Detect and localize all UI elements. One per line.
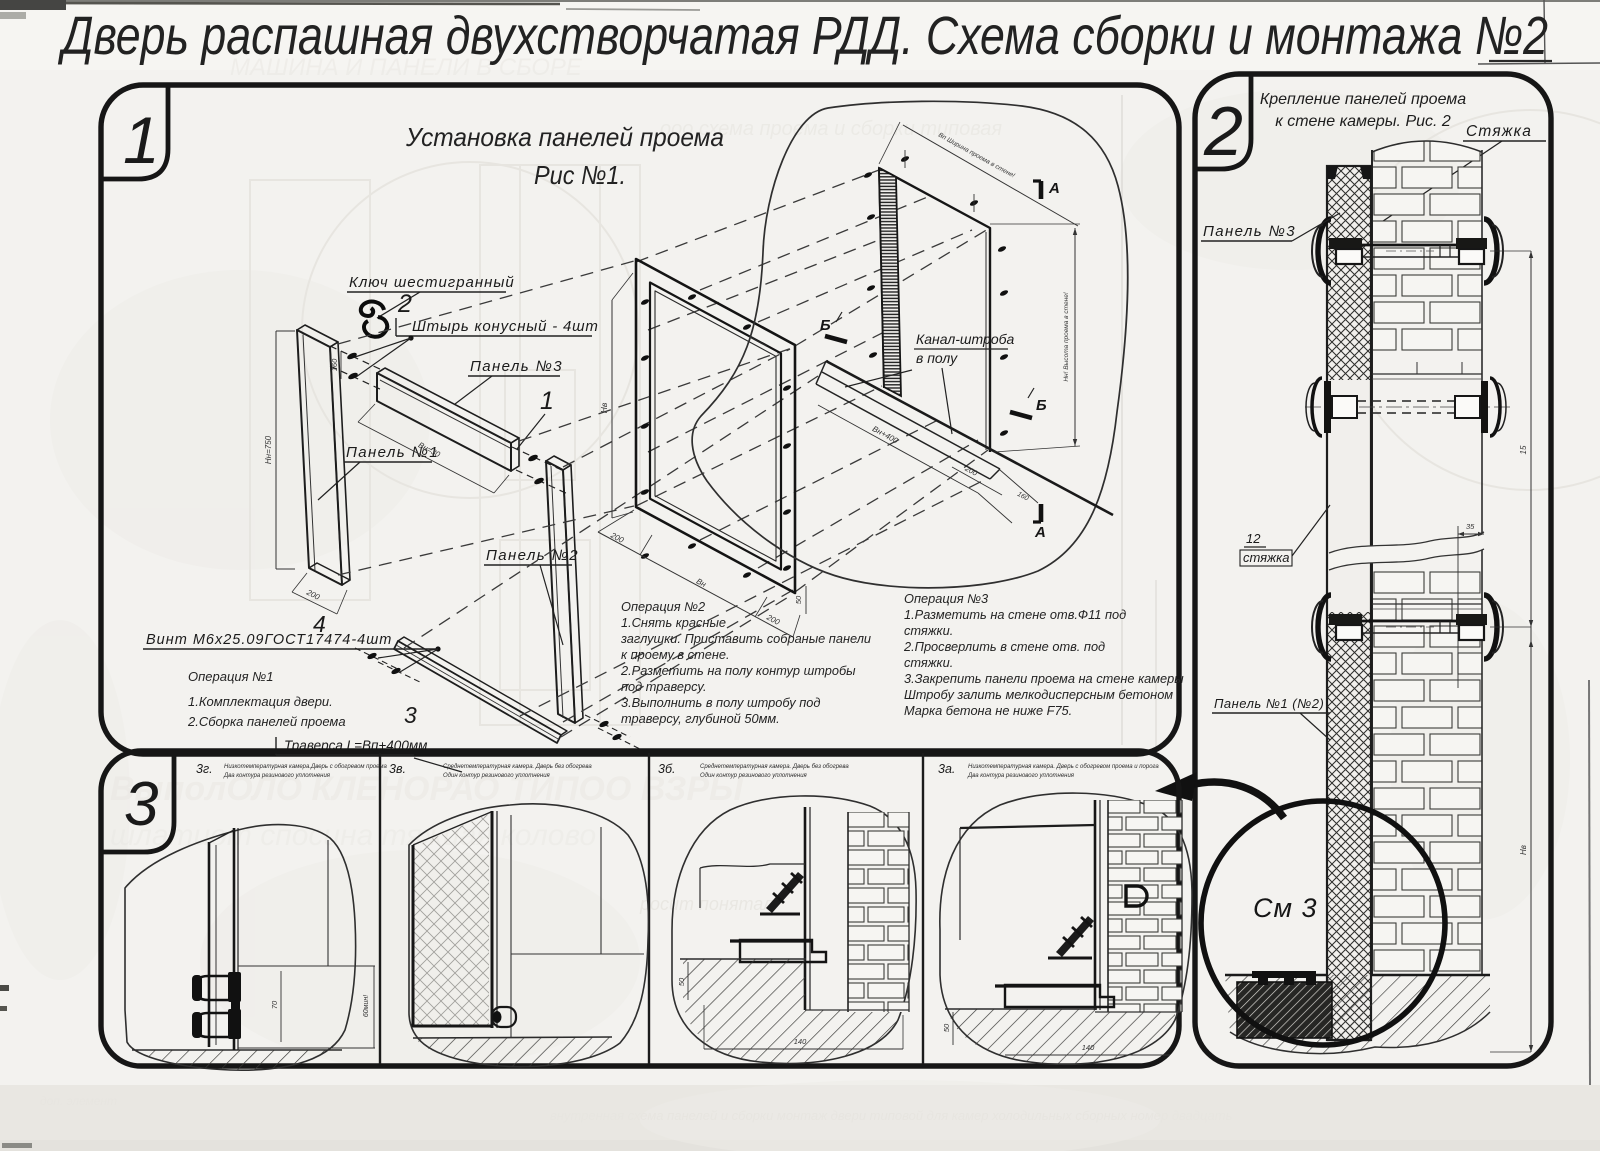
svg-text:Нв: Нв [599, 402, 609, 413]
svg-text:стяжки.: стяжки. [904, 623, 953, 638]
svg-text:См 3: См 3 [1253, 893, 1318, 923]
svg-text:стяжки.: стяжки. [904, 655, 953, 670]
svg-text:2.Сборка панелей проема: 2.Сборка панелей проема [187, 714, 346, 729]
svg-text:2.Просверлить в стене отв. по: 2.Просверлить в стене отв. под [903, 639, 1105, 654]
svg-text:доп. элемент: доп. элемент [40, 1094, 117, 1108]
svg-text:под траверсу.: под траверсу. [621, 679, 707, 694]
svg-text:Среднетемпературная камера. Дв: Среднетемпературная камера. Дверь без об… [700, 764, 849, 770]
svg-text:Установка панелей проема: Установка панелей проема [405, 122, 724, 152]
svg-text:70: 70 [270, 1000, 279, 1009]
svg-text:Операция №2: Операция №2 [621, 599, 705, 614]
svg-text:3.Выполнить в полу штробу под: 3.Выполнить в полу штробу под [621, 695, 820, 710]
svg-text:Панель №3: Панель №3 [1203, 223, 1296, 240]
svg-text:12: 12 [1246, 531, 1261, 546]
svg-text:к проему в стене.: к проему в стене. [621, 647, 730, 662]
svg-text:Операция №3: Операция №3 [904, 591, 988, 606]
svg-text:Канал-штроба: Канал-штроба [916, 331, 1015, 347]
svg-text:к стене камеры. Рис. 2: к стене камеры. Рис. 2 [1275, 113, 1451, 130]
svg-text:Марка бетона не ниже F75.: Марка бетона не ниже F75. [904, 703, 1072, 718]
svg-text:Штробу залить мелкодисперсным: Штробу залить мелкодисперсным бетоном [904, 687, 1173, 702]
svg-text:Панель №3: Панель №3 [470, 358, 563, 375]
svg-text:траверсу, глубиной 50мм.: траверсу, глубиной 50мм. [621, 711, 780, 726]
svg-text:Штырь конусный - 4шт: Штырь конусный - 4шт [412, 318, 599, 335]
svg-text:Винт М6х25.09ГОСТ17474-4шт: Винт М6х25.09ГОСТ17474-4шт [146, 632, 392, 648]
svg-text:3.Закрепить панели проема на с: 3.Закрепить панели проема на стене камер… [904, 671, 1184, 686]
svg-text:60мин!: 60мин! [363, 995, 370, 1017]
svg-text:Два контура резинового уплотне: Два контура резинового уплотнения [967, 773, 1075, 779]
svg-text:3в.: 3в. [389, 762, 406, 776]
svg-text:1: 1 [123, 103, 160, 177]
svg-text:А: А [1048, 180, 1060, 197]
svg-text:Рис №1.: Рис №1. [534, 160, 626, 190]
svg-text:шлатиот спосина тяжиая коло: шлатиот спосина тяжиая колово [110, 819, 596, 852]
svg-text:Ключ шестигранный: Ключ шестигранный [349, 274, 515, 291]
svg-text:3: 3 [404, 702, 417, 728]
svg-text:Нн=750: Нн=750 [264, 435, 273, 464]
svg-text:3б.: 3б. [658, 762, 675, 776]
svg-text:росит понятал: росит понятал [639, 894, 773, 914]
svg-text:внутренная схема панелей и сбо: внутренная схема панелей и сборки монтаж… [550, 1108, 1233, 1123]
svg-text:140: 140 [794, 1037, 807, 1046]
svg-text:заглушки. Приставить собраные: заглушки. Приставить собраные панели [620, 631, 871, 646]
svg-text:Низкотемпературная камера.Двер: Низкотемпературная камера.Дверь с обогре… [224, 764, 388, 770]
svg-text:Б: Б [820, 317, 831, 334]
svg-text:Панель №2: Панель №2 [486, 547, 579, 564]
svg-text:3а.: 3а. [938, 762, 955, 776]
svg-text:2: 2 [397, 290, 412, 318]
svg-text:140: 140 [1082, 1043, 1095, 1052]
svg-text:50: 50 [794, 595, 803, 604]
svg-text:Б: Б [1036, 397, 1047, 414]
svg-text:стяжка: стяжка [1243, 550, 1289, 565]
svg-text:Дверь распашная двухстворчатая: Дверь распашная двухстворчатая РДД. Схем… [58, 6, 1548, 66]
svg-text:Операция №1: Операция №1 [188, 669, 273, 684]
svg-text:2: 2 [1203, 92, 1243, 170]
svg-text:Крепление панелей проема: Крепление панелей проема [1260, 91, 1466, 108]
svg-text:Нн! Высота проема в стене!: Нн! Высота проема в стене! [1063, 292, 1070, 382]
svg-text:Стяжка: Стяжка [1466, 123, 1532, 140]
svg-text:35: 35 [1466, 522, 1475, 531]
svg-text:3г.: 3г. [196, 762, 213, 776]
svg-text:1.Снять красные: 1.Снять красные [621, 615, 726, 630]
svg-text:А: А [1034, 524, 1046, 541]
svg-text:Один контур резинового уплотне: Один контур резинового уплотнения [443, 773, 551, 779]
svg-text:160: 160 [330, 358, 339, 371]
svg-text:Нв: Нв [1519, 845, 1528, 855]
svg-text:2.Разметить на полу контур штр: 2.Разметить на полу контур штробы [620, 663, 856, 678]
svg-text:50: 50 [677, 977, 686, 986]
svg-text:Два контура резинового уплотне: Два контура резинового уплотнения [223, 773, 331, 779]
svg-text:1.Комплектация двери.: 1.Комплектация двери. [188, 694, 333, 709]
svg-text:50: 50 [942, 1023, 951, 1032]
svg-text:Один контур резинового уплотне: Один контур резинового уплотнения [700, 773, 808, 779]
svg-text:в полу: в полу [916, 350, 958, 366]
svg-text:Среднетемпературная камера. Дв: Среднетемпературная камера. Дверь без об… [443, 764, 592, 770]
svg-text:Панель №1 (№2): Панель №1 (№2) [1214, 696, 1324, 711]
svg-text:3: 3 [124, 770, 158, 839]
svg-text:Низкотемпературная камера. Две: Низкотемпературная камера. Дверь с обогр… [968, 764, 1159, 770]
svg-text:1: 1 [540, 387, 554, 415]
svg-text:1.Разметить на стене отв.Ф11 п: 1.Разметить на стене отв.Ф11 под [904, 607, 1126, 622]
svg-text:15: 15 [1519, 445, 1528, 454]
